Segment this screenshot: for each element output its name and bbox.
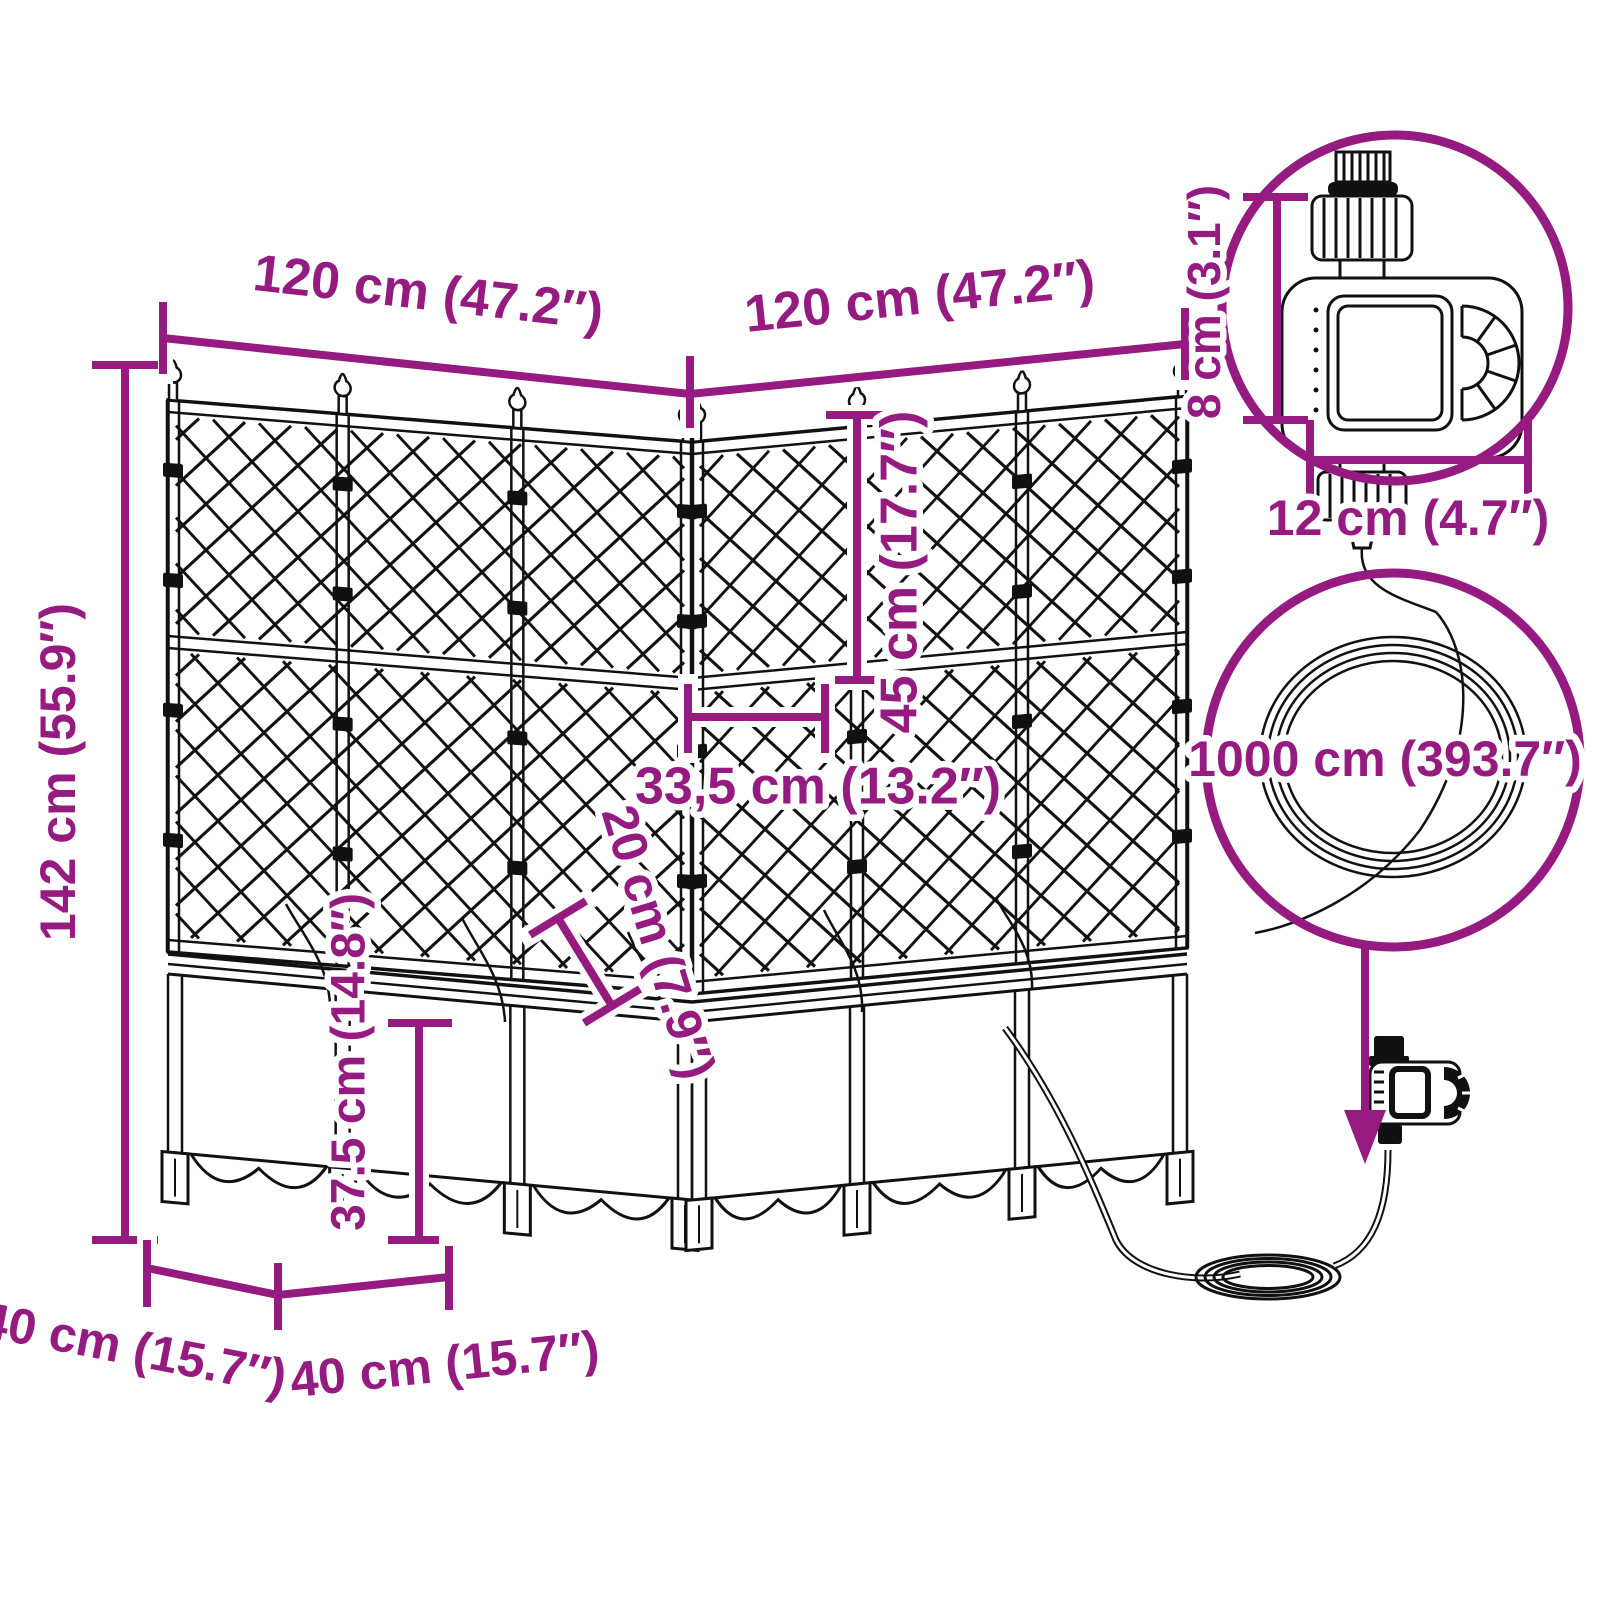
dimension-depth-left-and-right [147,1240,449,1330]
product-dimension-diagram: 120 cm (47.2″) 120 cm (47.2″) 142 cm (55… [0,0,1600,1600]
dim-label-height-total: 142 cm (55.9″) [30,603,86,941]
dim-label-depth-right: 40 cm (15.7″) [287,1320,601,1408]
diagram-svg: 120 cm (47.2″) 120 cm (47.2″) 142 cm (55… [0,0,1600,1600]
planter-right-row [686,953,1193,1250]
dim-label-timer-width: 12 cm (4.7″) [1267,490,1549,546]
dim-label-planter-height: 37.5 cm (14.8″) [323,893,376,1231]
dim-label-timer-height: 8 cm (3.1″) [1178,185,1230,419]
trellis-right-wall [687,356,1192,995]
watering-timer-small [1369,1036,1474,1144]
dim-label-width-right: 120 cm (47.2″) [742,250,1098,344]
dim-label-box-inner-depth: 20 cm (7.9″) [591,799,727,1085]
dim-label-hose-length: 1000 cm (393.7″) [1188,731,1582,787]
dimension-planter-height [388,1023,452,1240]
dim-label-box-width: 33,5 cm (13.2″) [635,758,1001,816]
dim-label-width-left: 120 cm (47.2″) [250,244,606,341]
dim-label-trellis-tier: 45 cm (17.7″) [871,411,929,734]
dimension-height-total [92,365,158,1240]
